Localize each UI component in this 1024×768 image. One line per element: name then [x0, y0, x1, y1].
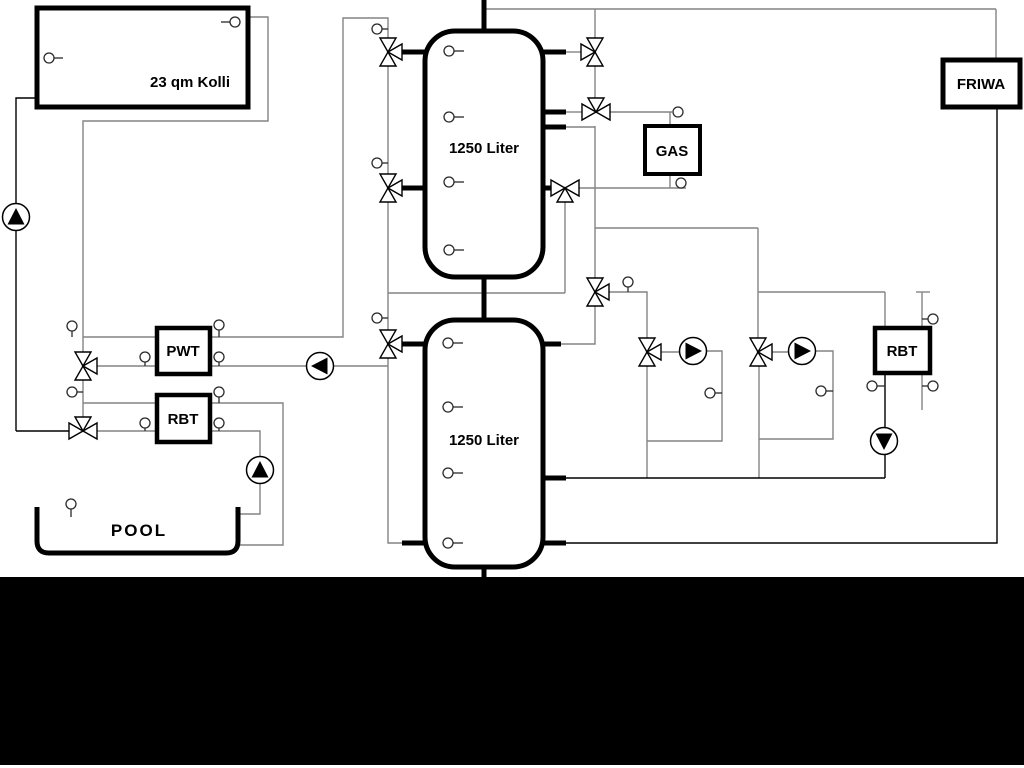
pool-label: POOL [111, 521, 167, 540]
footer-black-bar [0, 577, 1024, 765]
solar-collector: 23 qm Kolli [37, 8, 248, 107]
sensor-icon [676, 178, 686, 188]
rbt-right-label: RBT [887, 343, 918, 360]
sensor-icon [66, 499, 76, 517]
rbt-left-label: RBT [168, 411, 199, 428]
three-way-valve-gas-supply [582, 98, 610, 120]
sensor-icon [922, 314, 938, 324]
gas-boiler: GAS [645, 126, 700, 174]
schematic-canvas: 23 qm Kolli 1250 Liter 1250 Liter GAS FR… [0, 0, 1024, 768]
pwt-label: PWT [166, 343, 199, 360]
sensor-icon [705, 388, 722, 398]
heating-pump-1-icon [680, 338, 707, 365]
sensor-icon [214, 320, 224, 337]
solar-collector-label: 23 qm Kolli [150, 74, 230, 91]
hydraulic-schematic: 23 qm Kolli 1250 Liter 1250 Liter GAS FR… [0, 0, 1024, 768]
pool-pump-icon [247, 457, 274, 484]
sensor-icon [140, 352, 150, 366]
sensor-icon [372, 158, 388, 168]
sensor-icon [623, 277, 633, 292]
sensor-icon [214, 352, 224, 366]
buffer-tank-2: 1250 Liter [425, 320, 543, 567]
three-way-valve-pool-rbt [69, 417, 97, 439]
buffer-tank-1-label: 1250 Liter [449, 140, 519, 157]
friwa-module-label: FRIWA [957, 76, 1005, 93]
three-way-valve-heating-circuit-1 [639, 338, 661, 366]
three-way-valve-distribution [587, 278, 609, 306]
three-way-valve-tank1-mid-left [380, 174, 402, 202]
three-way-valve-tank1-top-right [581, 38, 603, 66]
sensor-icon [214, 387, 224, 403]
three-way-valve-pwt [75, 352, 97, 380]
pwt-pump-icon [307, 353, 334, 380]
three-way-valve-tank1-top-left [380, 38, 402, 66]
three-way-valve-heating-circuit-2 [750, 338, 772, 366]
sensor-icon [372, 24, 388, 34]
sensor-icon [867, 381, 885, 391]
friwa-module: FRIWA [943, 60, 1020, 107]
sensor-icon [372, 313, 388, 323]
sensor-icon [673, 107, 683, 117]
rbt-left: RBT [157, 395, 210, 442]
pwt-heat-exchanger: PWT [157, 328, 210, 374]
three-way-valve-gas-return [551, 180, 579, 202]
sensor-icon [140, 418, 150, 431]
sensor-icon [214, 418, 224, 431]
sensor-icon [67, 387, 83, 397]
heating-pump-2-icon [789, 338, 816, 365]
three-way-valve-tank2-top-left [380, 330, 402, 358]
pool-basin: POOL [37, 507, 238, 553]
sensor-icon [816, 386, 833, 396]
rbt-right: RBT [875, 328, 930, 373]
buffer-tank-1: 1250 Liter [425, 31, 543, 277]
gas-boiler-label: GAS [656, 143, 689, 160]
buffer-tank-2-label: 1250 Liter [449, 432, 519, 449]
rbt-pump-icon [871, 428, 898, 455]
solar-pump-icon [3, 204, 30, 231]
sensor-icon [922, 381, 938, 391]
sensor-icon [67, 321, 77, 337]
